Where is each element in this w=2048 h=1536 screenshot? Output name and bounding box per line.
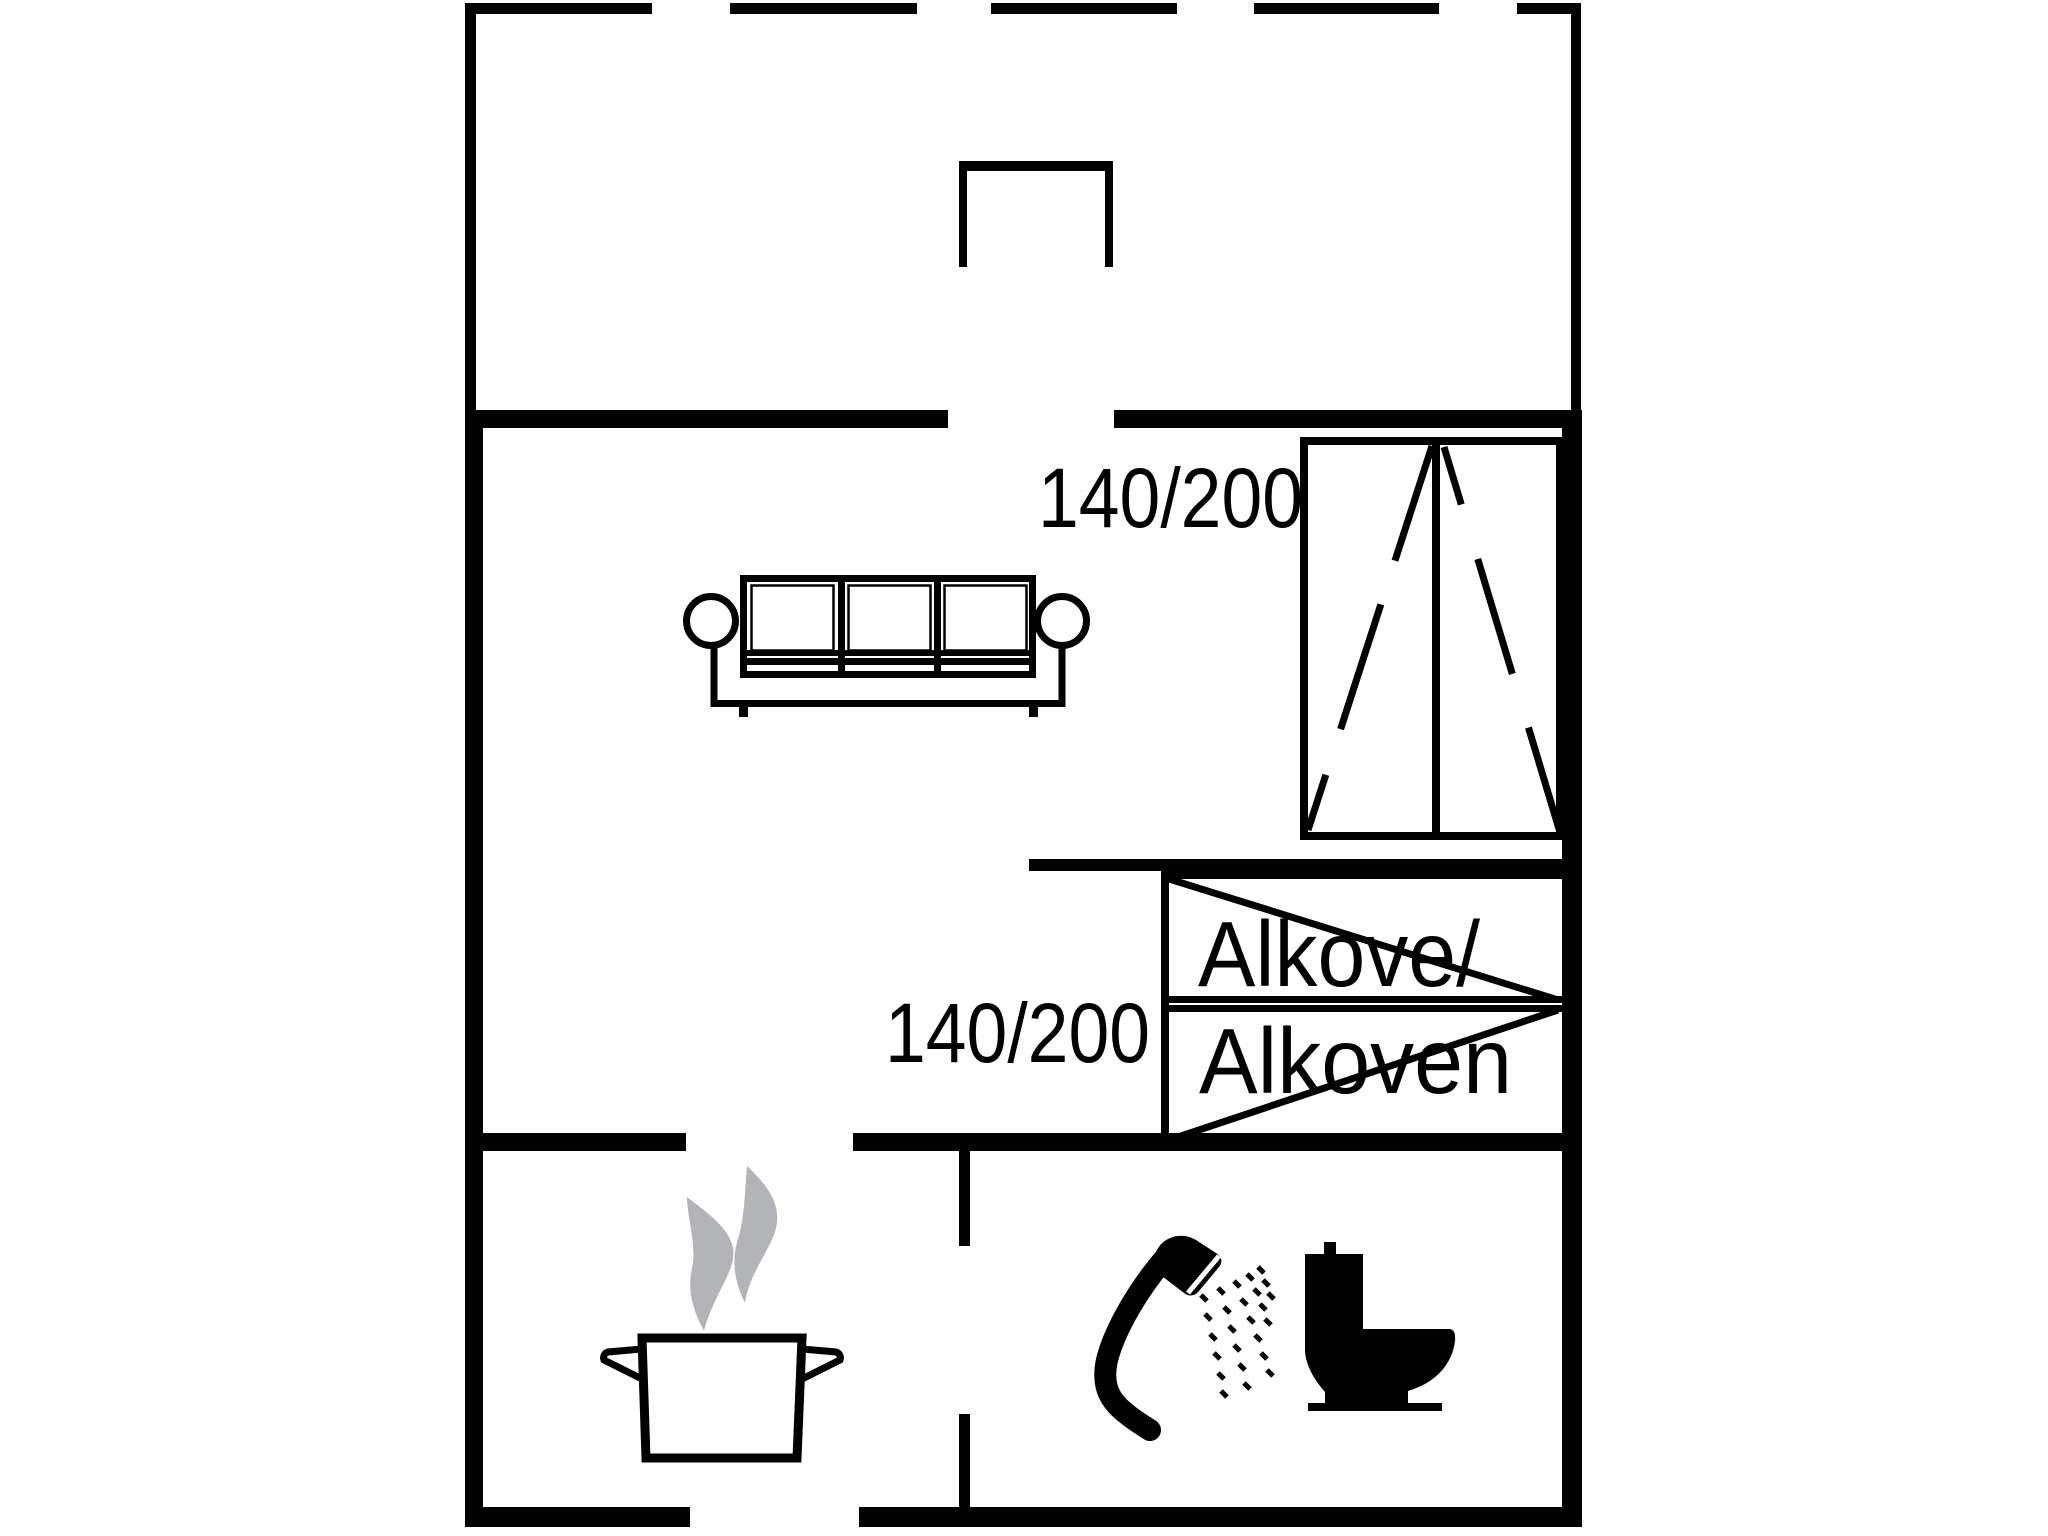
svg-text:140/200: 140/200 — [1038, 451, 1303, 545]
svg-text:Alkoven: Alkoven — [1199, 1009, 1512, 1113]
svg-text:Alkove/: Alkove/ — [1198, 902, 1480, 1006]
svg-text:140/200: 140/200 — [885, 986, 1150, 1080]
